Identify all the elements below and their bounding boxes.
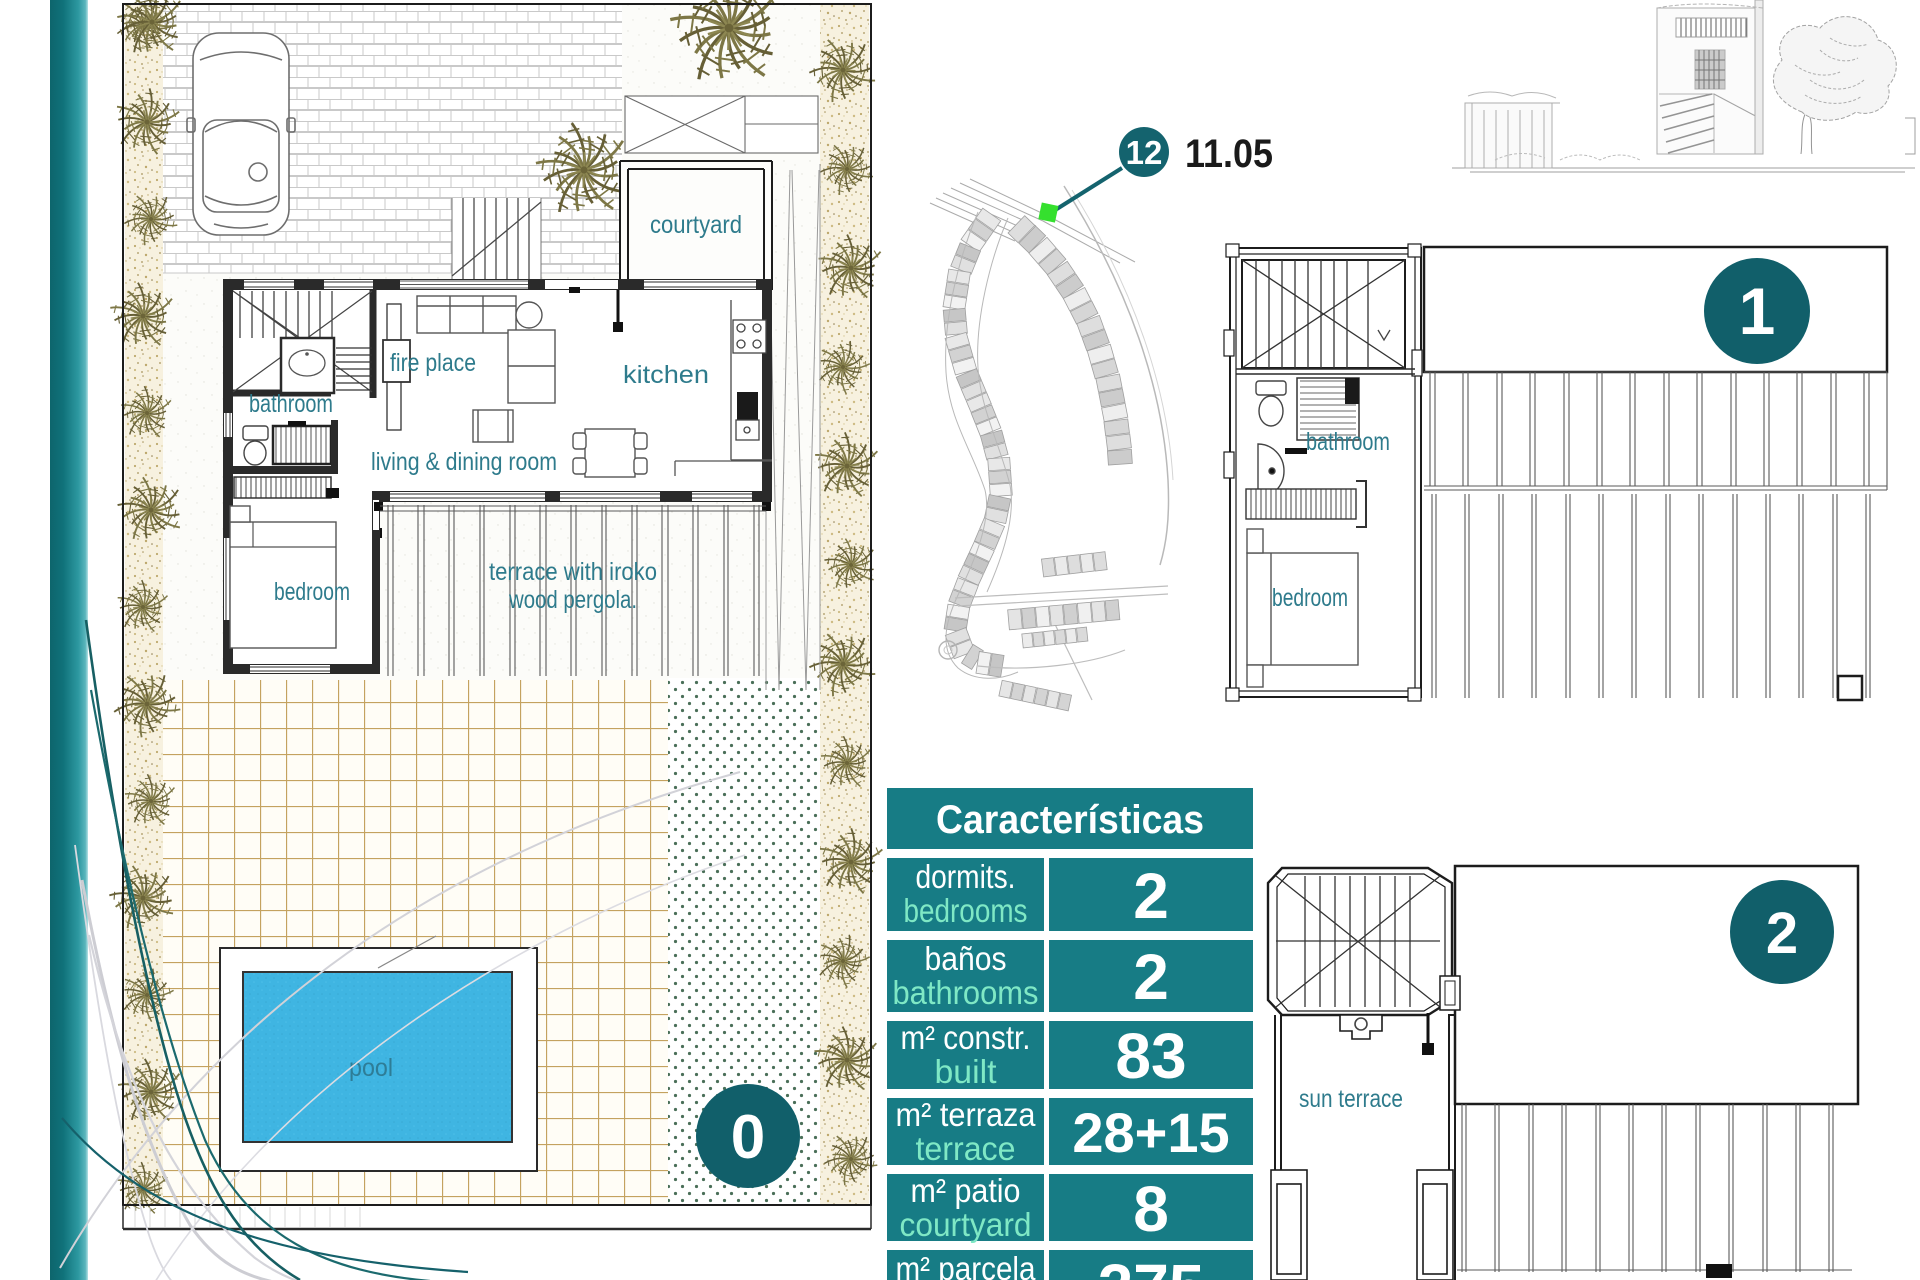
svg-text:bathrooms: bathrooms [893,974,1039,1011]
svg-text:0: 0 [731,1103,765,1172]
svg-text:kitchen: kitchen [623,361,709,389]
svg-text:baños: baños [925,940,1007,977]
svg-text:bedroom: bedroom [274,578,350,606]
svg-text:2: 2 [1766,901,1798,966]
svg-text:2: 2 [1133,941,1169,1013]
svg-text:8: 8 [1133,1173,1169,1245]
svg-text:83: 83 [1115,1020,1186,1092]
svg-text:terrace: terrace [916,1130,1016,1167]
svg-text:m² terraza: m² terraza [896,1096,1037,1133]
svg-text:2: 2 [1133,860,1169,932]
svg-text:courtyard: courtyard [650,211,742,239]
svg-text:pool: pool [349,1054,393,1082]
svg-text:fire place: fire place [390,349,476,377]
svg-text:built: built [935,1053,997,1090]
svg-text:m² patio: m² patio [911,1172,1021,1209]
svg-text:sun terrace: sun terrace [1299,1085,1403,1113]
svg-text:275: 275 [1098,1251,1205,1280]
svg-text:28+15: 28+15 [1072,1101,1229,1164]
svg-text:bedrooms: bedrooms [904,892,1028,929]
svg-text:12: 12 [1126,134,1163,171]
svg-text:1: 1 [1739,274,1776,348]
svg-text:m² parcela: m² parcela [896,1250,1037,1280]
svg-text:bedroom: bedroom [1272,584,1348,612]
svg-text:courtyard: courtyard [900,1206,1032,1243]
svg-text:terrace with iroko: terrace with iroko [489,558,657,586]
svg-text:bathroom: bathroom [249,390,333,418]
svg-text:living & dining room: living & dining room [371,448,557,476]
svg-text:Características: Características [936,798,1204,842]
svg-text:wood pergola.: wood pergola. [508,586,637,614]
svg-text:m² constr.: m² constr. [901,1019,1031,1056]
svg-text:dormits.: dormits. [916,858,1016,895]
svg-text:11.05: 11.05 [1185,132,1273,176]
svg-text:bathroom: bathroom [1306,428,1390,456]
